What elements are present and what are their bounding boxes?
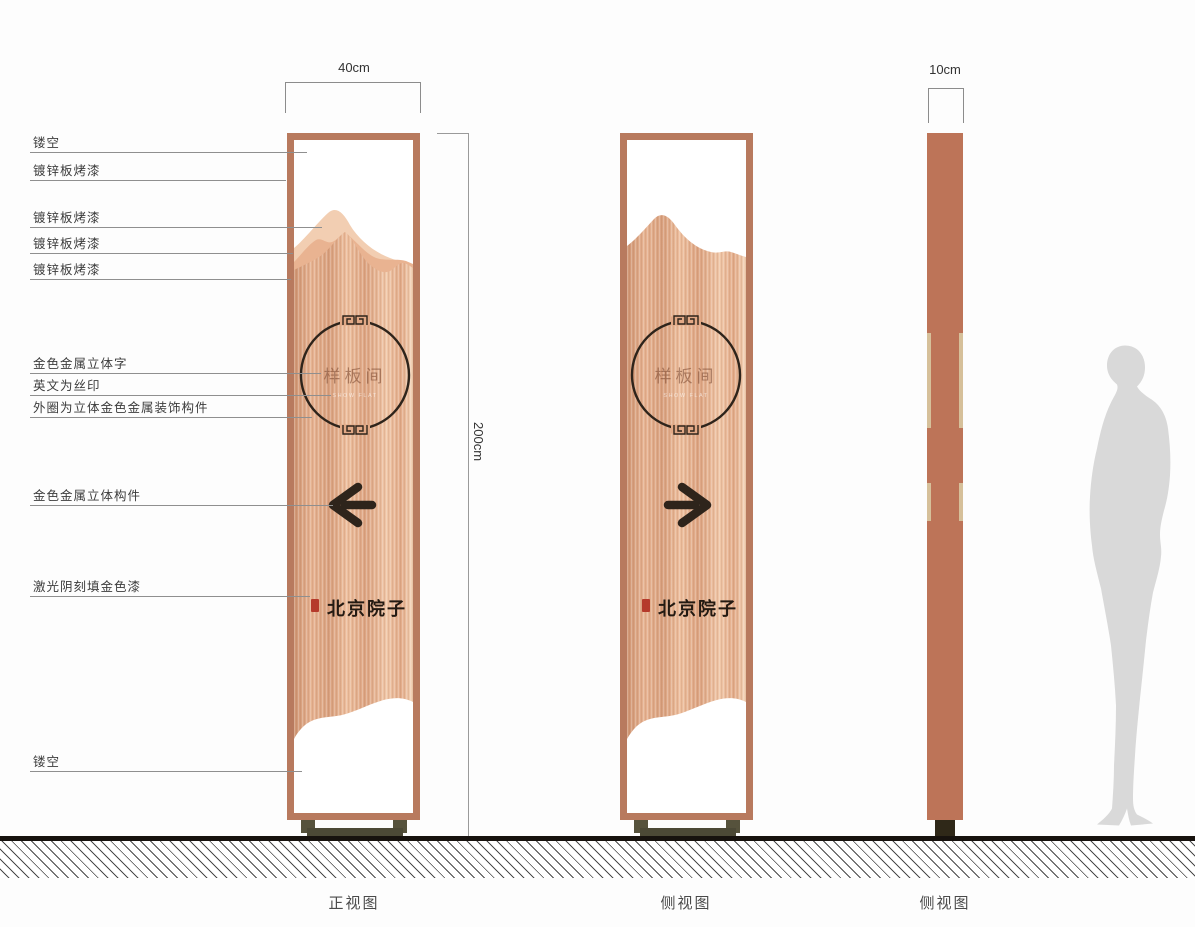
profile-protrusion-left-lower	[927, 483, 931, 521]
brand-calligraphy: 北京院子	[327, 598, 407, 619]
height-dimension-label: 200cm	[471, 422, 486, 461]
width-dimension-bracket	[285, 82, 421, 113]
callout-leader-line	[30, 227, 322, 228]
callout-leader-line	[30, 771, 302, 772]
callout-label: 镀锌板烤漆	[33, 259, 101, 278]
side-base-plate	[640, 828, 736, 836]
width-dimension-label: 40cm	[322, 60, 386, 75]
callout-label: 镀锌板烤漆	[33, 233, 101, 252]
callout-label: 镀锌板烤漆	[33, 160, 101, 179]
seal-stamp-icon	[642, 599, 650, 612]
height-dimension-line	[468, 133, 469, 836]
callout-label: 镂空	[33, 751, 60, 770]
profile-protrusion-left-upper	[927, 333, 931, 428]
front-panel-graphic: 样板间 SHOW FLAT 北京院子	[294, 140, 413, 813]
callout-leader-line	[30, 279, 291, 280]
callout-label: 激光阴刻填金色漆	[33, 576, 141, 595]
profile-view-panel	[927, 133, 963, 820]
room-label: 样板间	[655, 367, 718, 386]
callout-label: 金色金属立体构件	[33, 485, 141, 504]
ring-ornament-mask-bottom	[671, 425, 701, 434]
callout-label: 镀锌板烤漆	[33, 207, 101, 226]
callout-label: 金色金属立体字	[33, 353, 128, 372]
side-view-panel: 样板间 SHOW FLAT 北京院子	[620, 133, 753, 820]
brand-calligraphy: 北京院子	[658, 598, 738, 619]
spec-drawing-canvas: 样板间 SHOW FLAT 北京院子	[0, 0, 1195, 927]
callout-label: 外圈为立体金色金属装饰构件	[33, 397, 209, 416]
room-label-en: SHOW FLAT	[663, 393, 708, 399]
seal-stamp-icon	[311, 599, 319, 612]
callout-leader-line	[30, 253, 293, 254]
callout-leader-line	[30, 395, 331, 396]
front-view-panel: 样板间 SHOW FLAT 北京院子	[287, 133, 420, 820]
ground-hatching	[0, 841, 1195, 878]
callout-label: 英文为丝印	[33, 375, 101, 394]
room-label-en: SHOW FLAT	[332, 393, 377, 399]
callout-leader-line	[30, 373, 321, 374]
depth-dimension-label: 10cm	[913, 62, 977, 77]
callout-leader-line	[30, 505, 333, 506]
callout-leader-line	[30, 596, 310, 597]
caption-profile-view: 侧视图	[875, 892, 1015, 913]
panel-body-brushed-texture	[627, 215, 746, 739]
height-dimension-top-tick	[437, 133, 468, 134]
profile-protrusion-right-upper	[959, 333, 963, 428]
caption-side-view: 侧视图	[616, 892, 756, 913]
front-base-plate	[307, 828, 403, 836]
human-scale-silhouette	[1040, 336, 1195, 833]
side-panel-graphic: 样板间 SHOW FLAT 北京院子	[627, 140, 746, 813]
profile-foot	[935, 820, 955, 837]
callout-leader-line	[30, 152, 307, 153]
callout-label: 镂空	[33, 132, 60, 151]
callout-leader-line	[30, 417, 312, 418]
caption-front-view: 正视图	[284, 892, 424, 913]
person-icon	[1040, 336, 1195, 833]
room-label: 样板间	[324, 367, 387, 386]
depth-dimension-bracket	[928, 88, 964, 123]
profile-protrusion-right-lower	[959, 483, 963, 521]
callout-leader-line	[30, 180, 286, 181]
ring-ornament-mask-top	[671, 317, 701, 326]
ring-ornament-mask-bottom	[340, 425, 370, 434]
ring-ornament-mask-top	[340, 317, 370, 326]
